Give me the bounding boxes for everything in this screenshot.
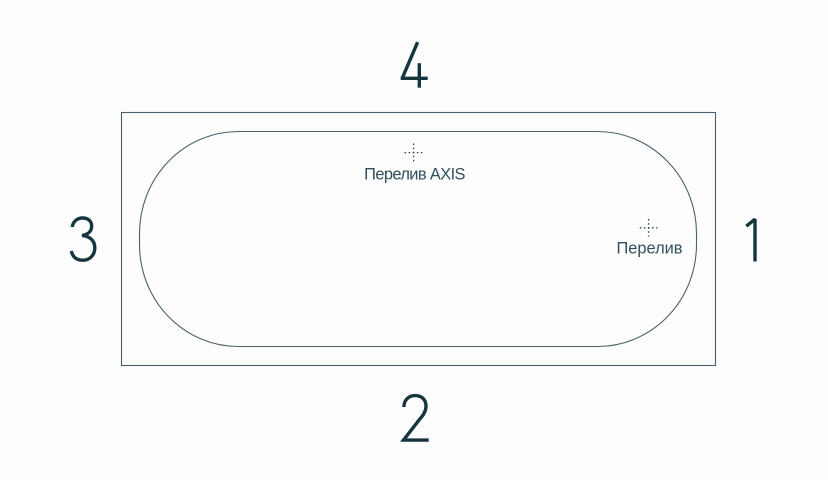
- svg-text:Перелив AXIS: Перелив AXIS: [364, 166, 465, 184]
- svg-text:Перелив: Перелив: [616, 240, 682, 258]
